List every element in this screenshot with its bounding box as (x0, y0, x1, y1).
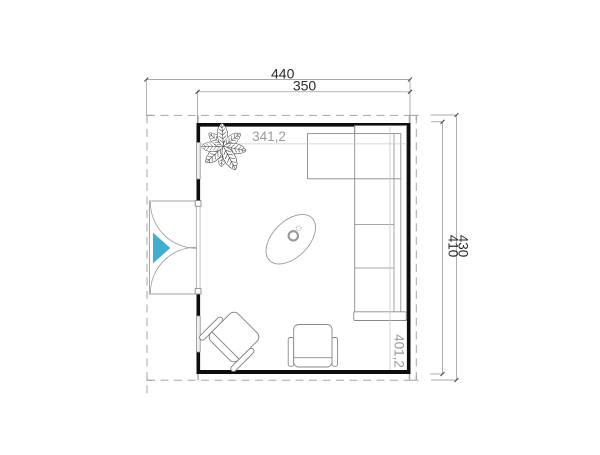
svg-text:401,2: 401,2 (392, 334, 407, 368)
svg-text:341,2: 341,2 (252, 129, 286, 144)
svg-text:410: 410 (445, 235, 460, 258)
svg-text:350: 350 (293, 78, 317, 94)
svg-text:440: 440 (271, 65, 295, 81)
